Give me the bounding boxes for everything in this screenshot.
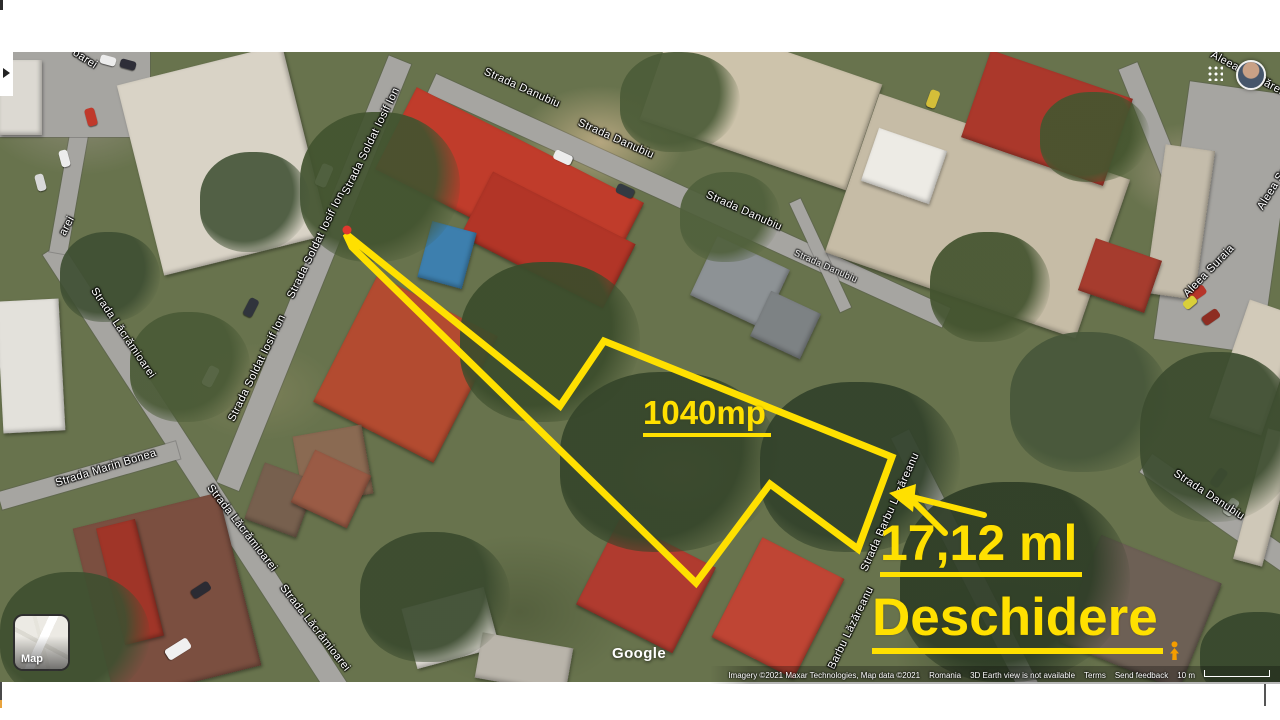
attribution-bar: Imagery ©2021 Maxar Technologies, Map da… (710, 666, 1280, 684)
earth-view-notice: 3D Earth view is not available (970, 671, 1075, 680)
satellite-map-canvas[interactable]: Strada DanubiuStrada DanubiuStrada Danub… (0, 52, 1280, 682)
avatar[interactable] (1236, 60, 1266, 90)
corner-fragment (0, 0, 3, 10)
screenshot-stage: Strada DanubiuStrada DanubiuStrada Danub… (0, 0, 1280, 720)
edge-fragment (0, 682, 2, 702)
imagery-credit: Imagery ©2021 Maxar Technologies, Map da… (728, 671, 920, 680)
send-feedback-link[interactable]: Send feedback (1115, 671, 1168, 680)
map-type-button-label: Map (21, 653, 43, 665)
frontage-label: 17,12 ml (880, 518, 1082, 577)
scale-bar (1204, 670, 1270, 677)
scrollbar-fragment (1264, 684, 1266, 706)
building (0, 298, 65, 433)
grid-dots-marker (1206, 64, 1223, 81)
pegman-icon (1167, 641, 1182, 661)
area-label: 1040mp (643, 396, 771, 437)
google-logo[interactable]: Google (612, 645, 666, 662)
map-type-button[interactable]: Map (13, 614, 70, 671)
scale-label: 10 m (1177, 671, 1195, 680)
chevron-right-icon (3, 68, 10, 78)
edge-fragment-orange (0, 700, 2, 708)
region-label: Romania (929, 671, 961, 680)
side-panel-toggle[interactable] (0, 52, 13, 96)
terms-link[interactable]: Terms (1084, 671, 1106, 680)
opening-label: Deschidere (872, 591, 1163, 654)
